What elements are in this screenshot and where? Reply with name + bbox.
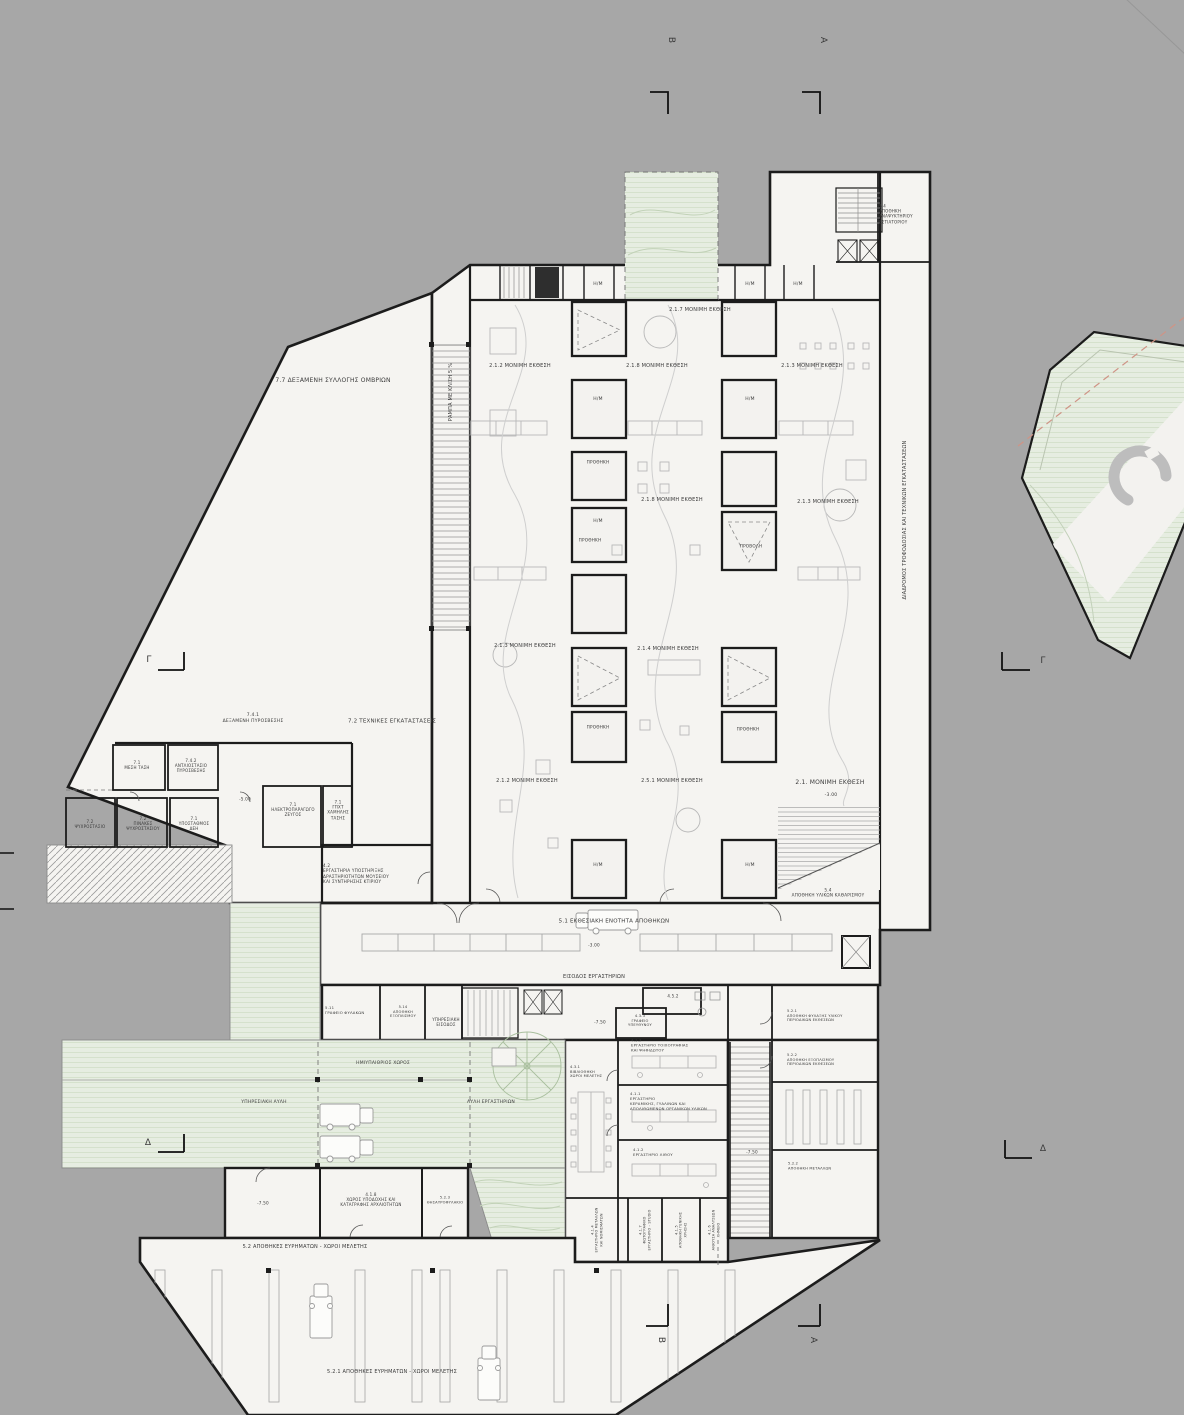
reception-rooms xyxy=(225,1168,468,1238)
shaft xyxy=(535,267,559,298)
amphitheatre-steps xyxy=(778,806,880,890)
courtyard-green xyxy=(625,172,718,300)
interior-ramp xyxy=(432,345,470,630)
floor-plan-drawing xyxy=(0,0,1184,1415)
central-ramp xyxy=(730,1042,770,1238)
floor-plan-canvas: ΒΑΓΓΔΔΒΑ7.7 ΔΕΞΑΜΕΝΗ ΣΥΛΛΟΓΗΣ ΟΜΒΡΙΩΝΡΑΜ… xyxy=(0,0,1184,1415)
